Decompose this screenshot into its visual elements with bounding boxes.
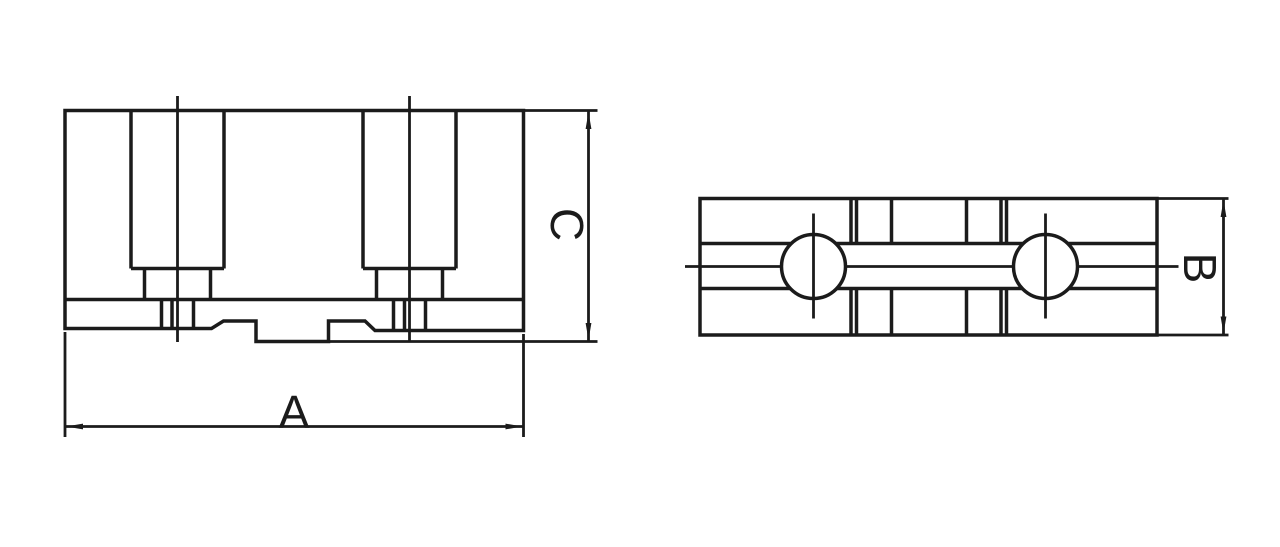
arrowhead-bottom bbox=[1221, 317, 1227, 334]
mounting-slot-right bbox=[363, 96, 456, 342]
dimension-c-label: C bbox=[541, 208, 593, 241]
dimension-a-label: A bbox=[279, 386, 310, 438]
dimension-b-label: B bbox=[1174, 253, 1226, 284]
mounting-slot-left bbox=[131, 96, 224, 342]
dimension-c: C bbox=[329, 111, 598, 342]
arrowhead-right bbox=[506, 424, 523, 430]
dimension-a: A bbox=[65, 332, 524, 438]
top-view bbox=[685, 199, 1179, 336]
technical-drawing: A C bbox=[0, 0, 1280, 547]
arrowhead-left bbox=[66, 424, 83, 430]
arrowhead-top bbox=[586, 112, 592, 129]
hole-right bbox=[1014, 214, 1078, 319]
arrowhead-top bbox=[1221, 200, 1227, 217]
hole-left bbox=[782, 214, 846, 319]
drawing-canvas: A C bbox=[0, 0, 1280, 547]
arrowhead-bottom bbox=[586, 323, 592, 340]
front-view bbox=[65, 96, 524, 342]
